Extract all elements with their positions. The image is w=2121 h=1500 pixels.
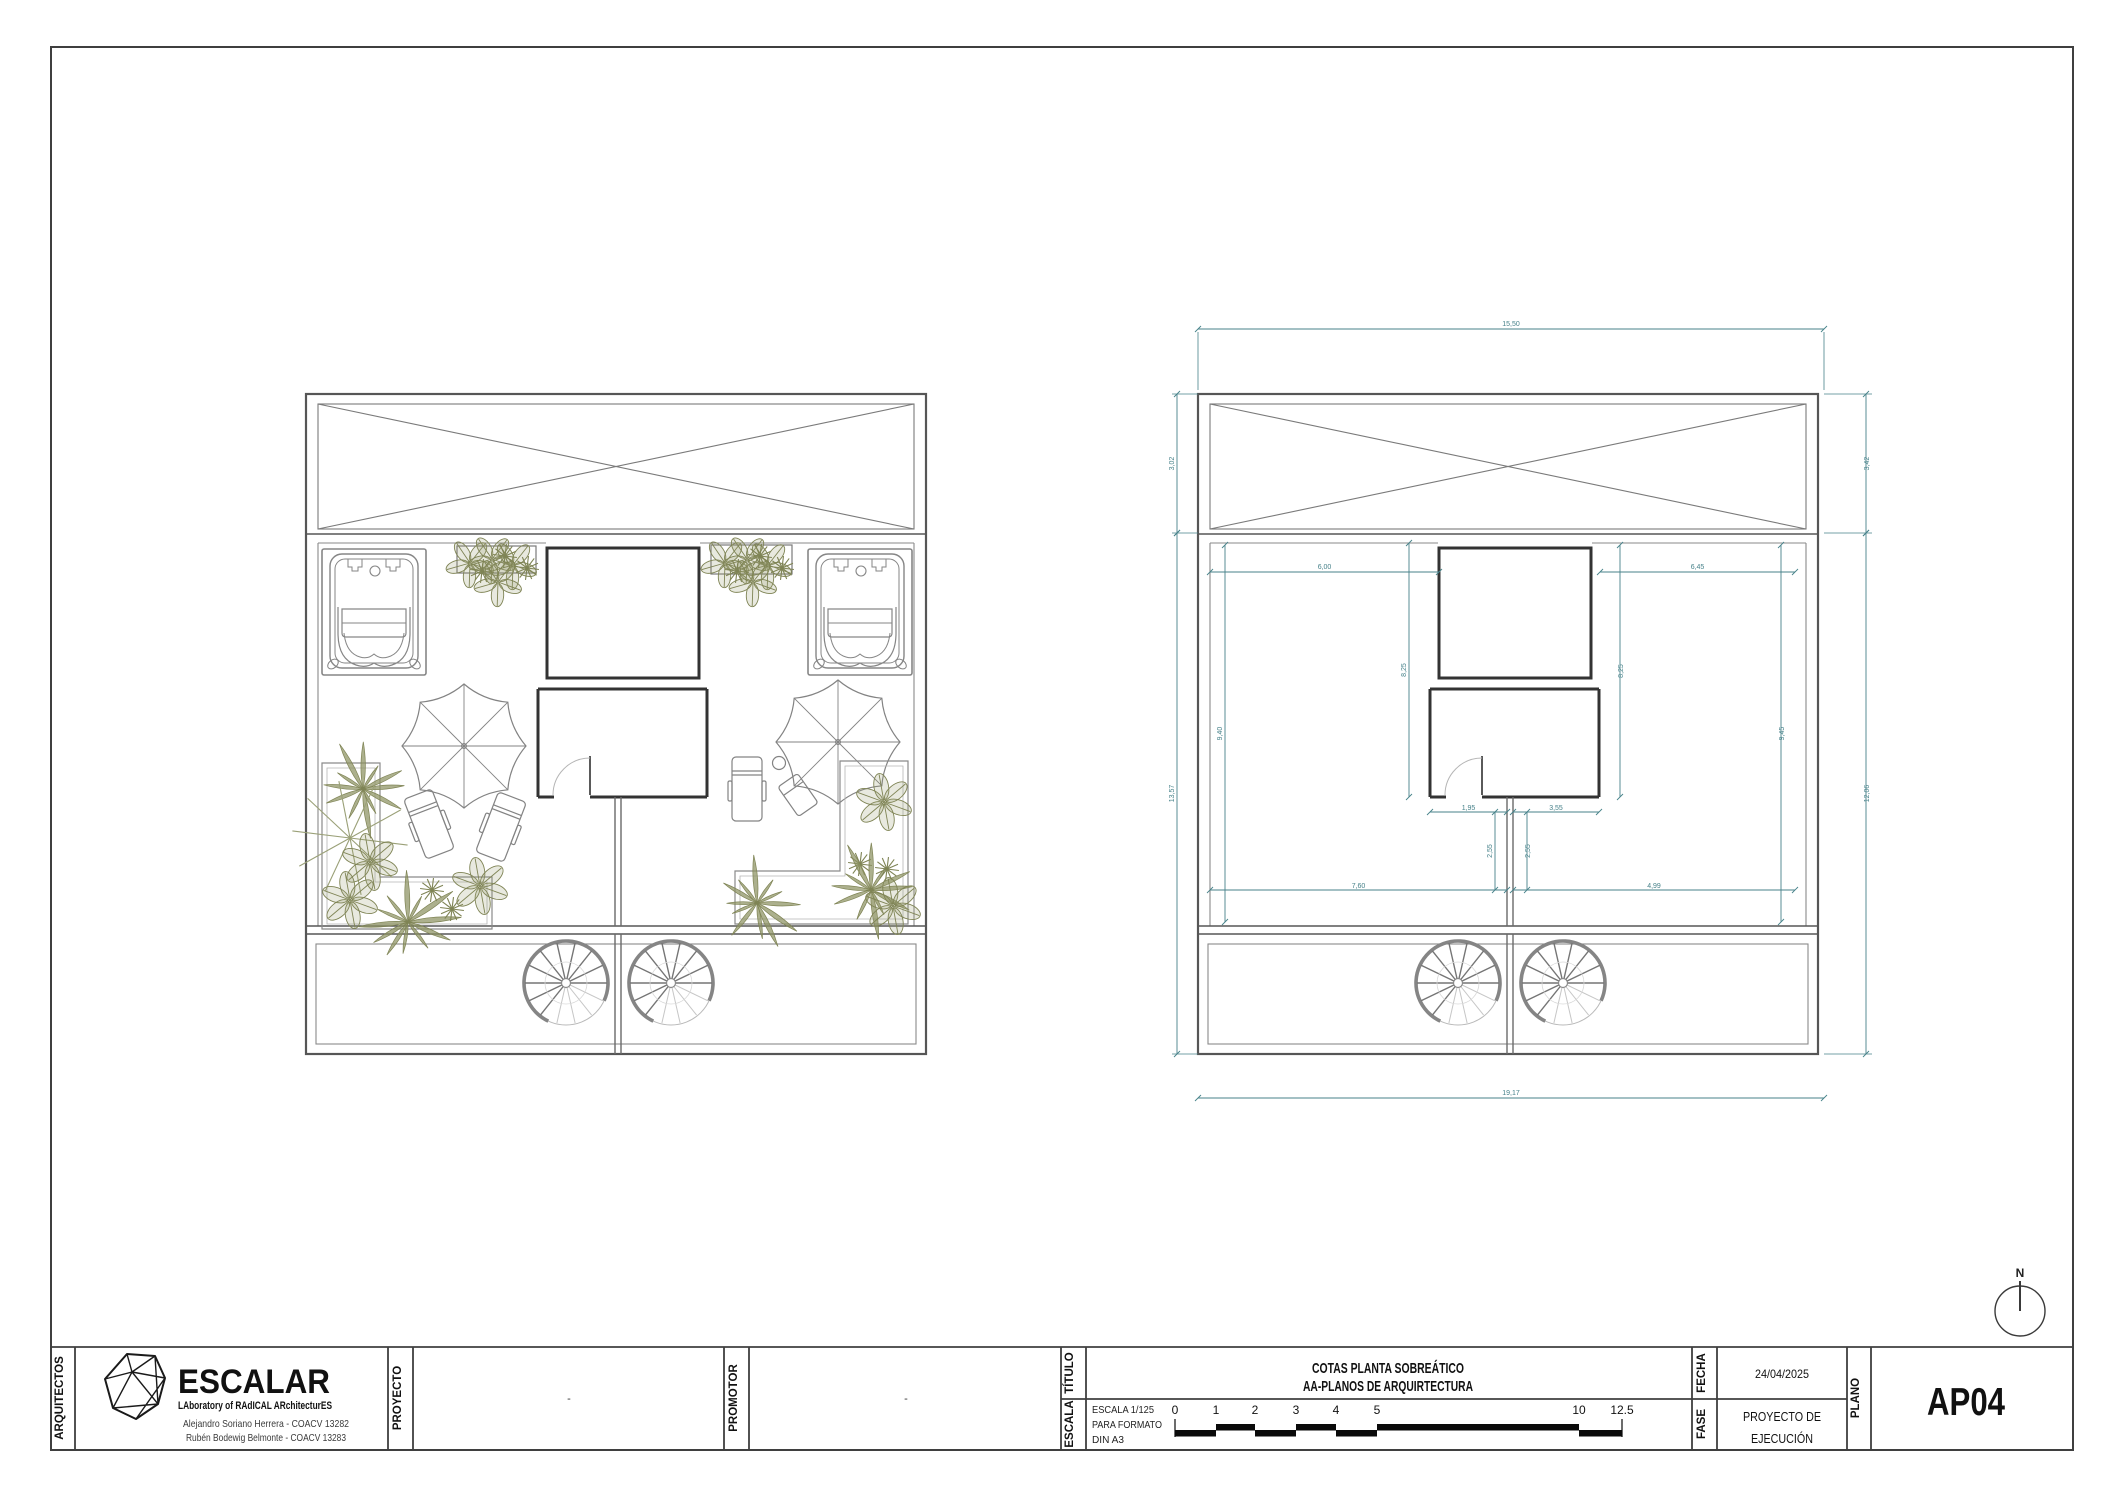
svg-text:LAboratory of RAdICAL ARchitec: LAboratory of RAdICAL ARchitecturES [178,1400,332,1412]
svg-text:15,50: 15,50 [1502,321,1520,328]
svg-text:COTAS PLANTA SOBREÁTICO: COTAS PLANTA SOBREÁTICO [1312,1360,1464,1377]
svg-text:10: 10 [1572,1403,1586,1417]
svg-text:19,17: 19,17 [1502,1090,1520,1097]
svg-text:5: 5 [1374,1403,1381,1417]
svg-text:8,25: 8,25 [1401,663,1408,677]
svg-text:3,02: 3,02 [1169,457,1176,471]
svg-text:2: 2 [1252,1403,1259,1417]
svg-text:PLANO: PLANO [1850,1378,1862,1418]
svg-text:ESCALA 1/125: ESCALA 1/125 [1092,1404,1154,1416]
svg-text:-: - [904,1393,908,1405]
svg-text:EJECUCIÓN: EJECUCIÓN [1751,1431,1813,1446]
svg-text:ARQUITECTOS: ARQUITECTOS [54,1356,66,1440]
svg-text:3,42: 3,42 [1864,457,1871,471]
svg-text:-: - [567,1393,571,1405]
svg-text:7,60: 7,60 [1352,883,1366,890]
svg-text:PROYECTO DE: PROYECTO DE [1743,1409,1821,1424]
svg-text:12,06: 12,06 [1864,785,1871,803]
svg-text:ESCALAR: ESCALAR [178,1363,330,1401]
svg-text:9,45: 9,45 [1779,727,1786,741]
svg-text:AA-PLANOS DE ARQUIRTECTURA: AA-PLANOS DE ARQUIRTECTURA [1303,1378,1473,1395]
svg-text:TÍTULO: TÍTULO [1063,1352,1076,1394]
svg-text:2,55: 2,55 [1525,844,1532,858]
svg-text:8,25: 8,25 [1618,664,1625,678]
svg-text:1,95: 1,95 [1462,805,1476,812]
svg-text:FASE: FASE [1696,1409,1708,1439]
svg-text:0: 0 [1172,1403,1179,1417]
svg-text:ESCALA: ESCALA [1064,1400,1076,1447]
svg-text:2,55: 2,55 [1487,844,1494,858]
svg-text:4,99: 4,99 [1647,883,1661,890]
svg-text:N: N [2016,1266,2025,1280]
svg-text:3,55: 3,55 [1549,805,1563,812]
svg-text:FECHA: FECHA [1696,1353,1708,1393]
svg-text:DIN A3: DIN A3 [1092,1434,1124,1446]
svg-text:1: 1 [1213,1403,1220,1417]
svg-text:6,45: 6,45 [1691,564,1705,571]
svg-text:9,40: 9,40 [1217,727,1224,741]
svg-text:12.5: 12.5 [1610,1403,1634,1417]
svg-text:Rubén Bodewig Belmonte - COACV: Rubén Bodewig Belmonte - COACV 13283 [186,1432,346,1444]
svg-text:PROYECTO: PROYECTO [392,1366,404,1430]
svg-text:Alejandro Soriano Herrera - CO: Alejandro Soriano Herrera - COACV 13282 [183,1418,349,1430]
svg-text:AP04: AP04 [1927,1381,2005,1424]
svg-text:PARA FORMATO: PARA FORMATO [1092,1419,1162,1431]
svg-text:4: 4 [1333,1403,1340,1417]
svg-text:3: 3 [1293,1403,1300,1417]
svg-text:6,00: 6,00 [1318,564,1332,571]
svg-text:13,57: 13,57 [1169,785,1176,803]
svg-text:PROMOTOR: PROMOTOR [728,1364,740,1432]
svg-text:24/04/2025: 24/04/2025 [1755,1367,1809,1381]
